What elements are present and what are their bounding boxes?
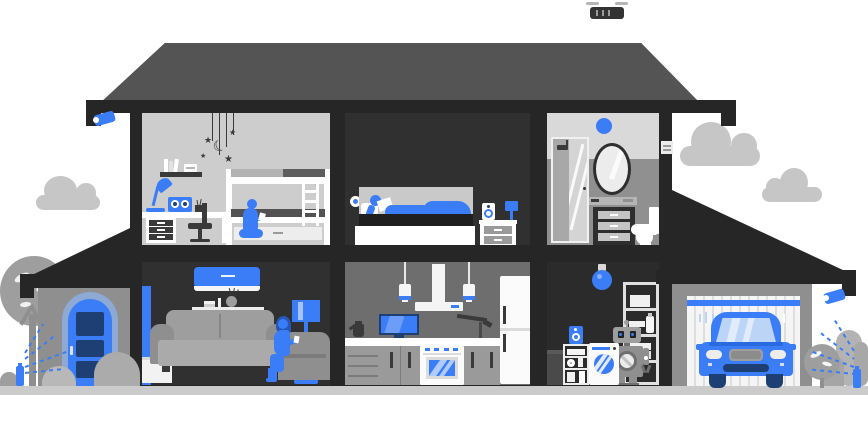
bottle — [578, 358, 583, 367]
countertop — [345, 338, 500, 346]
mattress-shadow — [359, 214, 473, 226]
sofa-seam — [219, 314, 221, 338]
towel — [567, 349, 585, 355]
robot-eye — [618, 331, 624, 338]
faucet — [455, 312, 495, 338]
car-wheel — [766, 374, 783, 388]
security-camera-left — [92, 106, 120, 132]
sprinkler-body — [853, 369, 861, 388]
fridge-handle — [503, 334, 506, 352]
speaker-dot — [487, 205, 490, 208]
cloud — [680, 122, 760, 166]
cabinet-doors — [464, 346, 500, 385]
bulb-globe — [592, 270, 612, 290]
shower-glass — [569, 139, 587, 241]
garage-roof — [672, 190, 845, 271]
robot-claw — [646, 365, 652, 374]
storage-box — [630, 295, 650, 307]
woman-with-phone — [266, 316, 306, 382]
chair-pole — [198, 229, 202, 239]
vent-slat — [663, 149, 671, 151]
door-handle — [390, 352, 393, 368]
camera-lens — [93, 117, 99, 123]
vent-slat — [663, 145, 671, 147]
drawer — [484, 236, 512, 244]
ladder-rung — [302, 200, 319, 203]
woman-head — [278, 319, 288, 329]
mirror — [593, 143, 631, 195]
toilet-base — [640, 243, 651, 245]
door-handle — [70, 346, 73, 355]
paper-roll — [567, 359, 575, 367]
drawer-handle — [610, 236, 618, 238]
drawer — [149, 220, 173, 226]
stove-knob — [453, 348, 458, 351]
utility-room — [547, 262, 659, 385]
drawer — [149, 227, 173, 233]
nightstand-set — [479, 201, 519, 245]
eye-glow — [631, 333, 634, 336]
pendant-light — [461, 262, 477, 302]
cabinet-doors — [381, 346, 420, 385]
shelf-line — [626, 308, 656, 311]
drawer-handle — [157, 236, 165, 238]
main-roof — [100, 43, 700, 103]
drone — [586, 2, 628, 20]
door-panel — [76, 312, 104, 336]
chair-base — [190, 239, 210, 242]
stove-knob — [444, 348, 449, 351]
cloud-puff — [766, 178, 784, 196]
bathroom — [547, 113, 659, 245]
drawer-line — [348, 355, 378, 357]
phone — [293, 336, 299, 344]
jar — [567, 372, 575, 382]
wall-shelf — [192, 288, 264, 312]
washer-panel — [592, 347, 610, 350]
cloud — [36, 176, 100, 210]
living-room — [142, 262, 330, 385]
washer-door — [594, 354, 614, 374]
shelf-bar — [160, 172, 202, 177]
blanket — [283, 169, 325, 177]
pendant-cord — [404, 262, 406, 284]
door-panel — [76, 340, 104, 357]
sensor-dot — [353, 199, 358, 204]
cloud-puff — [731, 133, 757, 159]
child-legs — [239, 229, 263, 238]
robot-joint — [644, 356, 648, 360]
vanity-drawer — [598, 233, 630, 241]
hood-led — [451, 305, 459, 308]
drawer-handle — [610, 225, 618, 227]
smart-speaker — [482, 203, 495, 220]
oven-window — [426, 357, 458, 379]
bin-rim — [547, 350, 563, 354]
vanity-drawer — [598, 211, 630, 219]
cabinet-drawers — [345, 346, 381, 385]
robot-foot — [627, 383, 639, 385]
sprinkler-right — [851, 366, 863, 388]
drawer-handle — [494, 239, 502, 241]
faucet-pipe — [479, 322, 482, 338]
washing-machine — [589, 340, 619, 385]
fridge-handle — [503, 306, 506, 324]
drawer-handle — [157, 229, 165, 231]
top-mattress — [231, 169, 325, 177]
ac-display — [221, 275, 235, 277]
fog-light — [708, 363, 712, 366]
stove-oven — [420, 346, 464, 385]
supply-shelf — [563, 344, 589, 385]
photo-frame — [184, 164, 197, 172]
fridge-divider — [500, 328, 530, 331]
drawer-line — [348, 365, 378, 367]
drawer — [484, 226, 512, 234]
eye-glow — [619, 333, 622, 336]
door-handle — [490, 352, 493, 368]
woman-foot — [266, 378, 277, 382]
smart-speaker — [569, 324, 585, 344]
vanity-drawer — [598, 222, 630, 230]
nightstand-body — [480, 224, 516, 245]
knob-dot — [173, 202, 177, 206]
main-eave-cap-right — [721, 100, 736, 126]
cloud-puff — [44, 176, 77, 205]
fridge — [500, 276, 530, 384]
book — [173, 159, 179, 172]
ladder-rung — [302, 190, 319, 193]
pendant-tip — [466, 300, 472, 302]
speaker-dot — [574, 328, 577, 331]
smart-ceiling-light — [596, 118, 612, 134]
speaker-ring — [484, 209, 493, 218]
bottle-cap — [648, 313, 652, 317]
sofa-leg — [162, 366, 170, 372]
drone-vent — [602, 10, 604, 16]
pendant-cord — [468, 262, 470, 284]
drawer-unit — [146, 218, 176, 243]
counter-tv — [377, 314, 421, 338]
bedside-lamp-pole — [510, 211, 513, 220]
washer-knob — [613, 347, 616, 350]
chair-back — [202, 203, 207, 225]
hood-duct — [432, 264, 445, 302]
tv-screen — [379, 314, 419, 335]
pendant-shade — [463, 284, 475, 296]
kettle-body — [353, 324, 364, 337]
door-handle — [471, 352, 474, 368]
car-wheel — [709, 374, 726, 388]
bush-trunk — [820, 378, 824, 388]
porch-eave — [20, 274, 138, 288]
shower-pipe — [566, 140, 568, 146]
drone-rotor-right — [615, 2, 628, 5]
robot-window — [617, 351, 637, 371]
counter-item — [623, 199, 633, 202]
frame-line — [186, 167, 195, 169]
mirror-streak — [609, 150, 624, 180]
wall-shelf — [160, 157, 206, 179]
wall-vent — [661, 141, 673, 154]
drawer-handle — [273, 232, 283, 234]
toilet — [631, 207, 659, 245]
ladder-rung — [302, 210, 319, 213]
shower-backwall — [553, 139, 569, 241]
trash-bin — [547, 350, 563, 385]
porch-eave-cap — [20, 274, 34, 298]
tablet — [258, 212, 266, 221]
pendant-tip — [402, 300, 408, 302]
garage-eave — [656, 270, 856, 284]
grille-mesh — [731, 351, 761, 359]
drawer-handle — [610, 214, 618, 216]
drawer — [149, 234, 173, 240]
drawer-line — [348, 375, 378, 377]
pendant-shade — [399, 284, 411, 296]
star-icon: ★ — [224, 155, 233, 165]
smart-home-illustration: ★ ★ ☾ ★ ★ — [0, 0, 868, 441]
oven-handle — [423, 353, 461, 355]
lamp-arm — [152, 186, 160, 206]
headlight — [770, 350, 786, 359]
drone-vent — [608, 10, 610, 16]
sprinkler-body — [16, 366, 24, 386]
pendant-bulb — [589, 262, 615, 292]
office-chair — [186, 203, 216, 245]
drone-vent — [596, 10, 598, 16]
speaker-body — [569, 326, 583, 344]
vanity-cabinet — [593, 207, 635, 245]
vanity-counter — [589, 197, 637, 205]
drawer-handle — [494, 229, 502, 231]
tv-glare — [384, 314, 405, 335]
mobile-string — [226, 113, 227, 147]
bulb-shine — [597, 274, 602, 279]
security-camera-right — [820, 284, 850, 308]
fog-light — [780, 363, 784, 366]
bed-base — [355, 226, 475, 245]
garage-door-stripe — [687, 300, 800, 306]
child-with-tablet — [238, 199, 266, 245]
pendant-light — [397, 262, 413, 302]
stove-knob — [434, 348, 439, 351]
door-handle — [408, 352, 411, 368]
headlight — [706, 350, 722, 359]
shower-cabin — [551, 137, 589, 243]
car — [699, 312, 793, 388]
star-icon: ★ — [229, 129, 236, 137]
bedroom — [345, 113, 530, 245]
vase — [226, 296, 237, 307]
faucet-head — [482, 319, 492, 328]
kids-room: ★ ★ ☾ ★ ★ — [142, 113, 330, 245]
drone-rotor-left — [586, 2, 599, 5]
roll-hole — [570, 362, 572, 364]
cloud-puff — [691, 122, 731, 161]
bedside-lamp-shade — [505, 201, 518, 211]
top-rail — [226, 177, 330, 184]
stove-knob — [425, 348, 430, 351]
counter-item — [591, 199, 599, 202]
car-cowl — [709, 342, 783, 346]
kitchen — [345, 262, 530, 385]
cloud — [762, 168, 822, 202]
book — [218, 298, 221, 307]
book — [164, 159, 168, 172]
car-bumper — [723, 364, 769, 372]
range-hood — [415, 264, 463, 312]
mobile-string — [212, 113, 213, 141]
robot-eye — [630, 331, 636, 338]
camera-lens — [823, 295, 829, 301]
shelf-line — [565, 368, 587, 370]
shower-handle — [583, 187, 586, 190]
door-gap — [400, 346, 401, 385]
speaker-ring — [572, 333, 580, 341]
washer-body — [589, 343, 619, 385]
sofa-seat — [158, 340, 282, 366]
radio-knob — [171, 200, 179, 208]
kettle — [349, 318, 367, 338]
drawer-handle — [157, 222, 165, 224]
bottle — [579, 371, 585, 383]
bush-round — [804, 344, 844, 388]
cloud-puff — [780, 168, 808, 197]
car-grille — [729, 349, 763, 361]
shelf-line — [565, 356, 587, 358]
